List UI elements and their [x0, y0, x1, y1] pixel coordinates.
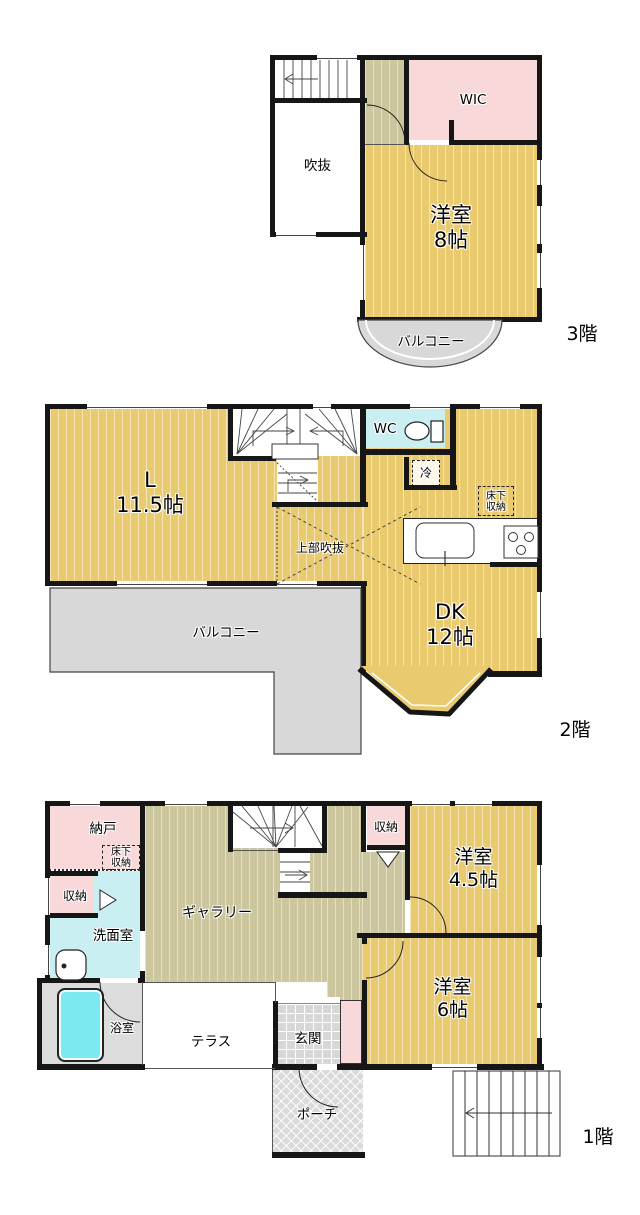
- window: [537, 160, 542, 185]
- wall-segment: [45, 871, 98, 876]
- wall-segment: [272, 502, 368, 507]
- window: [537, 253, 542, 288]
- label-balcony-3f: バルコニー: [366, 334, 496, 350]
- bay-window-wall: [359, 669, 491, 714]
- room-stairs-2f-lower: [277, 458, 318, 502]
- boundary-line: [275, 982, 276, 1003]
- window: [432, 1064, 477, 1070]
- label-western-8: 洋室8帖: [365, 203, 537, 253]
- wall-segment: [362, 980, 367, 1066]
- wall-segment: [360, 449, 455, 455]
- window: [276, 232, 316, 237]
- wall-segment: [404, 485, 457, 490]
- window: [410, 404, 450, 409]
- label-underfloor-1f: 床下収納: [102, 847, 140, 869]
- entrance-step: [277, 997, 340, 1004]
- label-western-45: 洋室4.5帖: [410, 846, 537, 892]
- window: [317, 55, 357, 60]
- label-void: 吹抜: [275, 158, 360, 174]
- hall-3f: [365, 60, 404, 145]
- window: [480, 404, 520, 409]
- hall-1f-east: [362, 852, 405, 933]
- boundary-line: [233, 850, 278, 851]
- wall-segment: [361, 586, 366, 672]
- label-upper-void: 上部吹抜: [280, 541, 360, 555]
- label-wic: WIC: [409, 92, 537, 108]
- hall-1f: [327, 806, 362, 1003]
- wall-segment: [322, 801, 327, 852]
- wall-segment: [490, 562, 537, 567]
- wall-segment: [278, 892, 367, 898]
- label-balcony-2f: バルコニー: [166, 625, 286, 641]
- room-terrace: [145, 983, 275, 1069]
- label-bathroom: 浴室: [100, 1021, 144, 1035]
- label-floor-2: 2階: [545, 719, 605, 742]
- label-entrance: 玄関: [282, 1031, 334, 1047]
- wall-segment: [337, 1064, 362, 1070]
- wall-segment: [228, 456, 276, 461]
- window: [412, 801, 450, 806]
- balcony-2f-shape: [50, 588, 361, 754]
- label-floor-3: 3階: [552, 323, 612, 346]
- wall-segment: [450, 404, 456, 490]
- label-wc: WC: [365, 421, 405, 437]
- window: [87, 404, 207, 409]
- wall-segment: [228, 801, 233, 852]
- window: [277, 581, 317, 586]
- wall-segment: [357, 933, 542, 938]
- window: [45, 945, 50, 975]
- wall-segment: [37, 1064, 145, 1070]
- wall-segment: [45, 404, 50, 586]
- room-stairs-2f-upper: [233, 409, 360, 456]
- wall-segment: [488, 671, 542, 677]
- window: [45, 878, 50, 915]
- label-closet-right: 収納: [366, 820, 406, 834]
- window: [537, 592, 542, 638]
- boundary-line: [365, 144, 405, 145]
- bay-window-fill: [361, 666, 490, 712]
- wall-segment: [270, 55, 275, 237]
- window: [117, 581, 207, 586]
- wall-segment: [362, 938, 367, 944]
- label-underfloor-2f: 床下収納: [478, 491, 514, 513]
- exterior-stairs: [453, 1071, 560, 1156]
- room-stairs-1f-lower: [280, 852, 310, 892]
- window: [70, 801, 100, 806]
- label-floor-1: 1階: [568, 1126, 628, 1149]
- wall-segment: [273, 1001, 278, 1067]
- boundary-line: [272, 1070, 273, 1152]
- wall-segment: [357, 317, 542, 322]
- label-dk: DK12帖: [380, 600, 520, 650]
- wall-segment: [360, 404, 366, 507]
- wall-segment: [270, 98, 367, 103]
- window: [537, 865, 542, 925]
- label-gallery: ギャラリー: [160, 905, 274, 922]
- kitchen-counter: [403, 518, 540, 564]
- label-terrace: テラス: [176, 1034, 246, 1050]
- wall-segment: [278, 848, 327, 853]
- window: [537, 957, 542, 1003]
- wall-segment: [37, 978, 100, 983]
- wall-segment: [272, 1152, 365, 1158]
- wall-segment: [45, 913, 98, 918]
- wall-segment: [449, 140, 537, 145]
- label-storeroom: 納戸: [60, 821, 146, 837]
- bathtub: [57, 988, 104, 1062]
- label-porch: ポーチ: [284, 1107, 350, 1123]
- floorplan-canvas: 吹抜 WIC 洋室8帖 バルコニー 3階 L11.5帖 WC 冷 床下収納 上部…: [0, 0, 640, 1215]
- boundary-line: [145, 1068, 275, 1069]
- wall-segment: [228, 404, 233, 461]
- wall-segment: [140, 971, 145, 978]
- label-western-6: 洋室6帖: [380, 976, 525, 1022]
- label-washroom: 洗面室: [63, 928, 163, 944]
- window: [165, 801, 207, 806]
- wall-segment: [140, 871, 145, 931]
- room-stairs-3f: [275, 60, 360, 98]
- shoe-cabinet: [340, 1000, 362, 1064]
- label-living: L11.5帖: [55, 468, 245, 518]
- wall-segment: [272, 1064, 317, 1070]
- label-closet-left: 収納: [52, 889, 98, 903]
- wall-segment: [367, 845, 410, 850]
- bay-window-glass: [372, 673, 480, 706]
- room-stairs-1f-upper: [233, 806, 322, 848]
- window: [537, 1008, 542, 1038]
- label-fridge: 冷: [412, 466, 440, 480]
- window: [537, 206, 542, 244]
- wall-segment: [37, 978, 42, 1070]
- window: [455, 801, 492, 806]
- boundary-line: [145, 982, 276, 983]
- window: [313, 404, 331, 409]
